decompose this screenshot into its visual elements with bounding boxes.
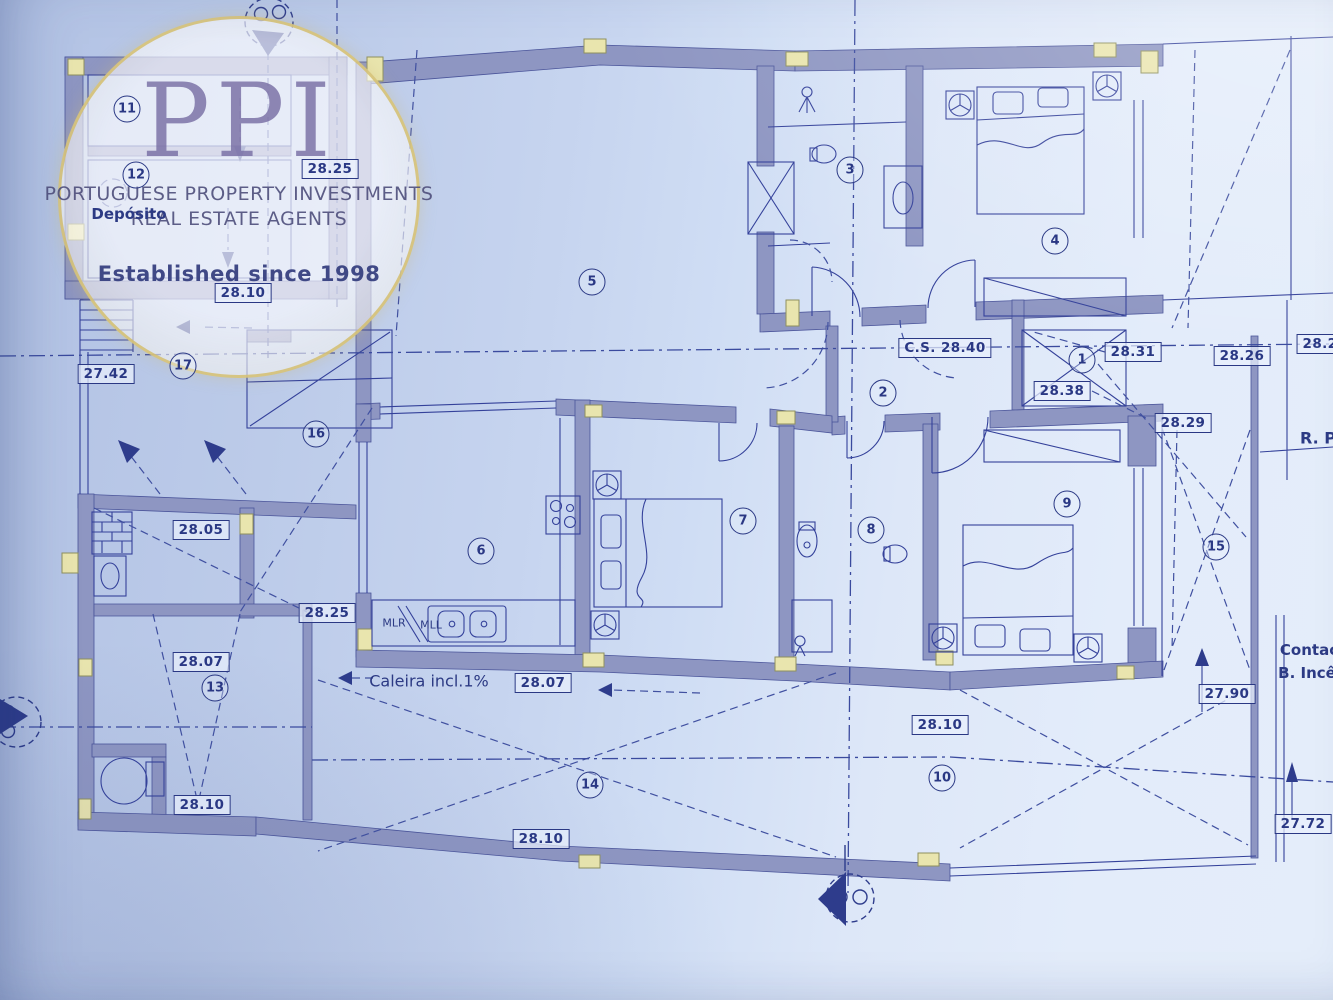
room-number-circle: 12 xyxy=(123,162,150,189)
elevation-label: 28.07 xyxy=(515,673,572,693)
room-number-circle: 6 xyxy=(468,538,495,565)
elevation-label: 27.42 xyxy=(78,364,135,384)
elevation-label: 28.05 xyxy=(173,520,230,540)
elevation-label: 28.25 xyxy=(302,159,359,179)
annotation-label: MLR xyxy=(382,617,405,630)
elevation-label: 27.72 xyxy=(1275,814,1332,834)
room-number-circle: 8 xyxy=(858,517,885,544)
elevation-label: 28.10 xyxy=(912,715,969,735)
room-number-circle: 9 xyxy=(1054,491,1081,518)
elevation-label: C.S. 28.40 xyxy=(898,338,991,358)
room-number-circle: 16 xyxy=(303,421,330,448)
room-number-circle: 15 xyxy=(1203,534,1230,561)
elevation-label: 28.2 xyxy=(1297,334,1333,354)
elevation-label: 28.07 xyxy=(173,652,230,672)
annotation-label: Contac xyxy=(1280,641,1333,659)
room-number-circle: 5 xyxy=(579,269,606,296)
annotation-label: R. P xyxy=(1300,429,1333,448)
plan-labels-layer: 123456789101112131415161728.2528.1027.42… xyxy=(0,0,1333,1000)
room-number-circle: 4 xyxy=(1042,228,1069,255)
room-number-circle: 14 xyxy=(577,772,604,799)
elevation-label: 28.38 xyxy=(1034,381,1091,401)
room-number-circle: 13 xyxy=(202,675,229,702)
elevation-label: 28.25 xyxy=(299,603,356,623)
elevation-label: 28.26 xyxy=(1214,346,1271,366)
blueprint-photo: PPI PORTUGUESE PROPERTY INVESTMENTS REAL… xyxy=(0,0,1333,1000)
room-number-circle: 10 xyxy=(929,765,956,792)
room-number-circle: 11 xyxy=(114,96,141,123)
annotation-label: Depósito xyxy=(91,205,166,223)
room-number-circle: 2 xyxy=(870,380,897,407)
annotation-label: B. Incê xyxy=(1278,664,1333,682)
room-number-circle: 7 xyxy=(730,508,757,535)
elevation-label: 27.90 xyxy=(1199,684,1256,704)
annotation-label: Caleira incl.1% xyxy=(369,672,488,691)
room-number-circle: 3 xyxy=(837,157,864,184)
elevation-label: 28.29 xyxy=(1155,413,1212,433)
elevation-label: 28.31 xyxy=(1105,342,1162,362)
elevation-label: 28.10 xyxy=(513,829,570,849)
room-number-circle: 17 xyxy=(170,353,197,380)
room-number-circle: 1 xyxy=(1069,347,1096,374)
elevation-label: 28.10 xyxy=(174,795,231,815)
elevation-label: 28.10 xyxy=(215,283,272,303)
annotation-label: MLL xyxy=(420,619,442,632)
